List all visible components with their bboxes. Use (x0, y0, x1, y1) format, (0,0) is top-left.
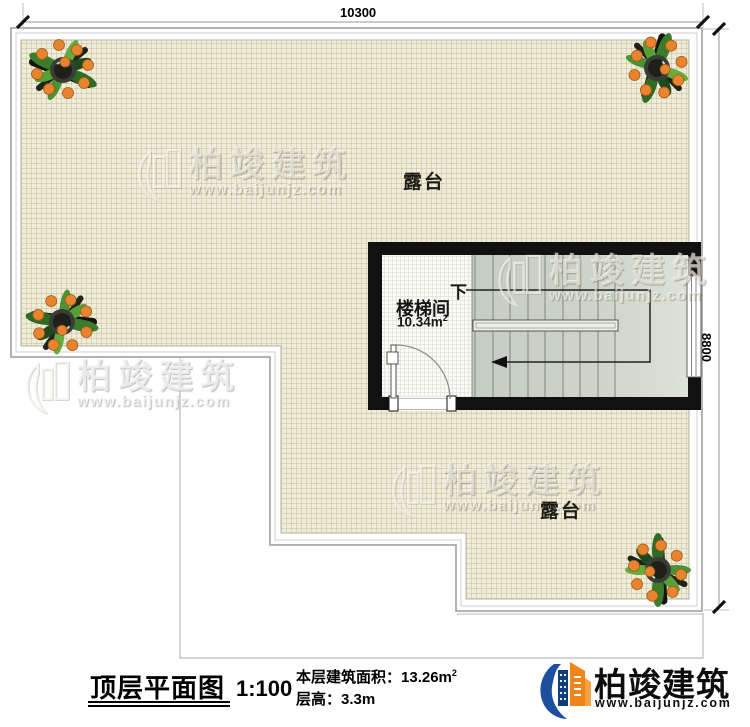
stair-room-area-sup: 2 (443, 313, 448, 323)
title-underline (88, 701, 230, 703)
brand-url: www.baijunjz.com (595, 696, 732, 710)
plan-title: 顶层平面图 (90, 668, 225, 705)
brand-logo-icon (538, 656, 592, 722)
watermark-logo-icon (496, 250, 542, 308)
terrace-label-lower: 露台 (540, 496, 582, 523)
watermark: 柏竣建筑 www.baijunjz.com (24, 356, 241, 414)
stair-down-label: 下 (450, 278, 467, 303)
floor-area-label: 本层建筑面积： (296, 669, 401, 686)
stair-room-area: 10.34m2 (397, 313, 448, 330)
floor-plan-sheet: 10300 8800 柏竣建筑 www.baijunjz.com 柏竣建筑 ww… (0, 0, 750, 727)
top-dimension-label: 10300 (340, 5, 376, 20)
watermark-brand: 柏竣建筑 (189, 148, 353, 183)
terrace-label-upper: 露台 (403, 167, 445, 194)
watermark-logo-icon (390, 460, 436, 518)
watermark-brand: 柏竣建筑 (443, 464, 607, 499)
watermark: 柏竣建筑 www.baijunjz.com (136, 144, 353, 202)
plan-scale: 1:100 (236, 676, 292, 702)
floor-area-sup: 2 (452, 668, 457, 678)
right-dimension-label: 8800 (699, 333, 714, 362)
floor-area: 本层建筑面积：13.26m2 (296, 666, 457, 687)
watermark-url: www.baijunjz.com (77, 393, 241, 410)
watermark-logo-icon (24, 356, 70, 414)
floor-height: 层高：3.3m (296, 688, 375, 709)
watermark-brand: 柏竣建筑 (77, 360, 241, 395)
watermark-brand: 柏竣建筑 (549, 254, 713, 289)
watermark-url: www.baijunjz.com (549, 287, 713, 304)
watermark-url: www.baijunjz.com (443, 497, 607, 514)
title-underline (88, 705, 230, 707)
floor-area-value: 13.26m (401, 669, 452, 686)
watermark: 柏竣建筑 www.baijunjz.com (496, 250, 713, 308)
watermark-logo-icon (136, 144, 182, 202)
watermark-url: www.baijunjz.com (189, 181, 353, 198)
stair-room-area-value: 10.34m (397, 315, 443, 330)
